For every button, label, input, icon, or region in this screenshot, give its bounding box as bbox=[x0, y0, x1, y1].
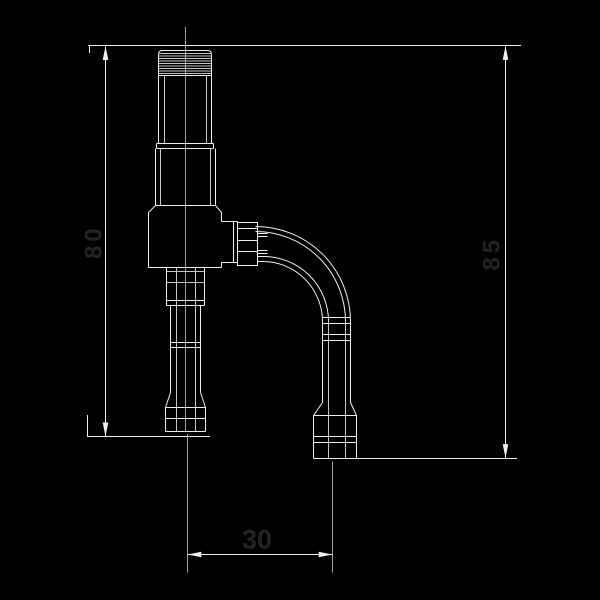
svg-text:8: 8 bbox=[81, 246, 108, 259]
svg-text:30: 30 bbox=[242, 525, 272, 555]
svg-text:0: 0 bbox=[81, 228, 108, 241]
svg-text:5: 5 bbox=[479, 240, 506, 253]
svg-text:8: 8 bbox=[479, 257, 506, 270]
